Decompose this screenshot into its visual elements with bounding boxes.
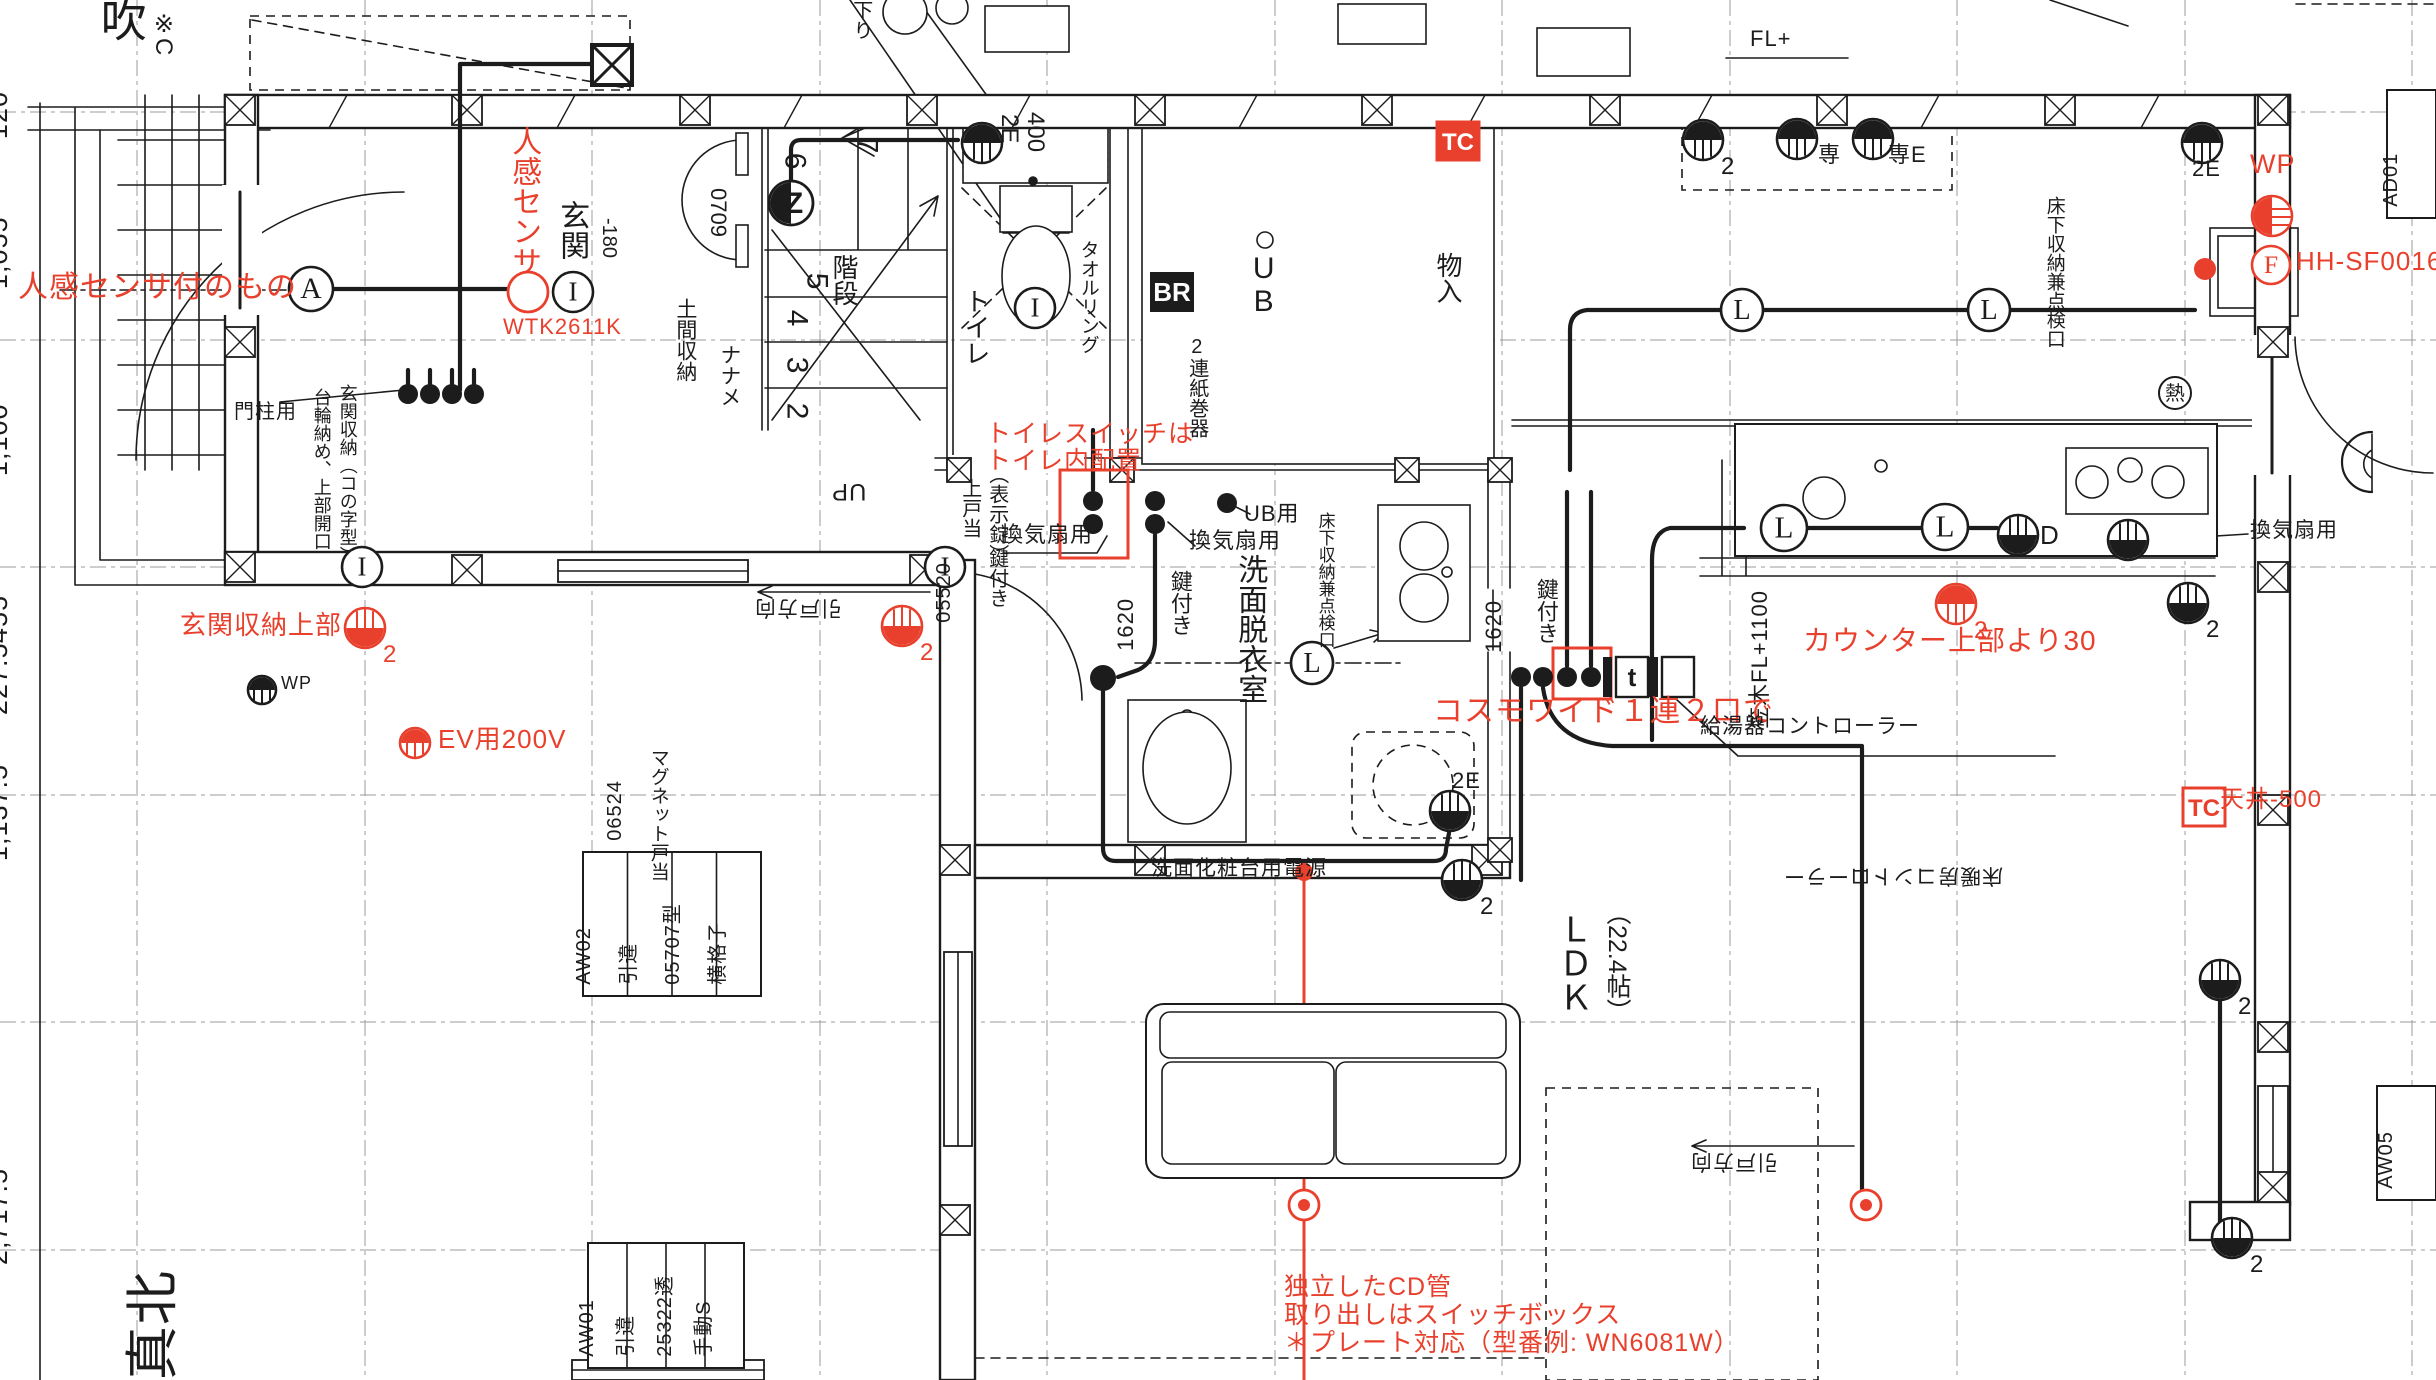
sensor-model-entry: WTK2611K [503,316,622,339]
note-fragment: ※C [150,10,175,55]
room-entry: 玄関 [556,200,587,260]
room-toilet: トイレ [962,288,989,366]
fan-model-label: HH-SF0016L [2296,248,2436,275]
motion-sensor-entry: 人感センサ [508,126,539,276]
room-doma-storage: 土間収納 [674,298,696,382]
stair-num-3: 3 [781,357,812,375]
window-table-aw01-col: 25322透 [655,1275,676,1357]
outlet-2e-toilet-label: 2E [996,114,1021,143]
stair-down-label: 下り [850,0,871,40]
naname-label: ナナメ [718,344,740,407]
stair-num-2: 2 [781,403,812,421]
vanity-power-label: 洗面化粧台用電源 [1151,858,1327,880]
floor-plan-labels: 吹※C人感センサ付のもの門柱用台輪納め、上部開口玄関収納（コの字型）人感センサ玄… [0,0,2436,1380]
floor-plan-canvas: AIZIBRTC2F熱LLLL22222t22IILTC 吹※C人感センサ付のも… [0,0,2436,1380]
void-title: 吹 [96,0,144,42]
window-table-aw01-col: 引違 [616,1315,637,1357]
true-north-label: 真北 [125,1270,181,1380]
kitchen-fan-label: 換気扇用 [2250,520,2338,542]
fan-outlet-label-2: 換気扇用 [1189,530,1281,553]
room-closet: 物入 [1434,252,1461,304]
ceiling-note: 天井-500 [2220,788,2322,813]
wp-label: WP [2250,150,2296,178]
door-stop-label: 上戸当 [959,478,980,538]
room-ub: UB [1248,252,1279,318]
room-stairs: 階段 [830,254,857,306]
entry-storage-note-2: 台輪納め、上部開口 [312,388,331,550]
room-ldk-size: （22.4帖） [1604,900,1630,1024]
stair-num-5: 5 [801,273,832,291]
ub-switch-label: UB用 [1244,503,1300,526]
window-table-aw01-col: 手動S [694,1300,715,1356]
slide-dir-ldk: 引戸方向 [1690,1150,1778,1172]
door-05520: 05520 [934,562,955,623]
door-key-label-t: 鍵付き [986,548,1007,608]
toilet-switch-note-2: トイレ内配置 [986,448,1142,474]
stair-num-6: 6 [779,153,810,171]
gate-post-label: 門柱用 [234,402,297,423]
window-table-aw02-col: 横格子 [708,922,729,985]
door-key-label-k: 鍵付き [1534,578,1557,644]
toilet-switch-note-1: トイレスイッチは [986,421,1194,447]
window-table-aw05-col: AW05 [2376,1131,2397,1189]
dimension-2,717.5: 2,717.5 [0,1168,12,1265]
door-table-ad01-col: AD01 [2381,153,2402,207]
outlet-d-label: D [2040,522,2060,549]
floorheat-controller-label: 床暖房コントローラー [1783,864,2003,886]
boiler-controller-label: 給湯器コントローラー [1700,716,1920,738]
counter-note: カウンター上部より30 [1803,626,2097,655]
slide-dir-hall: 引戸方向 [754,596,842,618]
outlet-sen-label: 専 [1818,144,1841,167]
window-table-aw02-col: AW02 [574,927,595,985]
dimension-120: 120 [0,91,12,139]
room-washroom: 洗面脱衣室 [1234,554,1265,704]
stair-num-7: 7 [851,137,882,155]
cd-note-2: 取り出しはスイッチボックス [1284,1302,1621,1328]
towel-ring-label: タオルリング [1078,240,1098,354]
outlet-2e-right-label: 2E [2192,158,2221,181]
cd-note-1: 独立したCD管 [1284,1274,1452,1300]
outlet-senE-label: 専E [1888,144,1927,167]
dimension-455: 455 [0,595,12,643]
door-key-label-w: 鍵付き [1168,570,1191,636]
dim-400: 400 [1022,112,1047,152]
ev-power-note: EV用200V [438,726,566,753]
dimension-227.5: 227.5 [0,643,12,716]
stair-num-4: 4 [781,310,812,328]
dimension-1,137.5: 1,137.5 [0,764,12,861]
sensor-note: 人感センサ付のもの [18,272,297,303]
door-1620-w: 1620 [1115,598,1138,651]
underfloor-hatch-label-right: 床下収納兼点検口 [2044,196,2064,348]
window-table-aw02-col: 引違 [619,943,640,985]
door-size-0709: 0709 [706,188,729,237]
fl-plus-label: FL+ [1750,28,1792,51]
washroom-2e-label: 2E [1452,770,1481,793]
door-06524: 06524 [605,780,626,841]
entry-level: -180 [598,218,619,258]
entry-storage-note-1: 玄関収納（コの字型） [338,384,357,564]
up-label: UP [831,478,866,503]
magnet-stop-label: マグネット戸当 [648,748,668,881]
dimension-1,100: 1,100 [0,404,12,477]
dimension-1,055: 1,055 [0,217,12,290]
cd-note-3: ＊プレート対応（型番例: WN6081W） [1284,1330,1740,1356]
underfloor-hatch-label-wash: 床下収納兼点検口 [1316,512,1334,648]
wp-hall-label: WP [281,674,312,693]
room-ldk: ＬＤＫ [1554,912,1589,1014]
window-table-aw02-col: 05707型 [663,903,684,985]
door-1620-k: 1620 [1483,600,1506,653]
fan-outlet-label-1: 換気扇用 [1001,524,1093,547]
window-table-aw01-col: AW01 [577,1299,598,1357]
entry-storage-top-note: 玄関収納上部 [180,612,342,639]
